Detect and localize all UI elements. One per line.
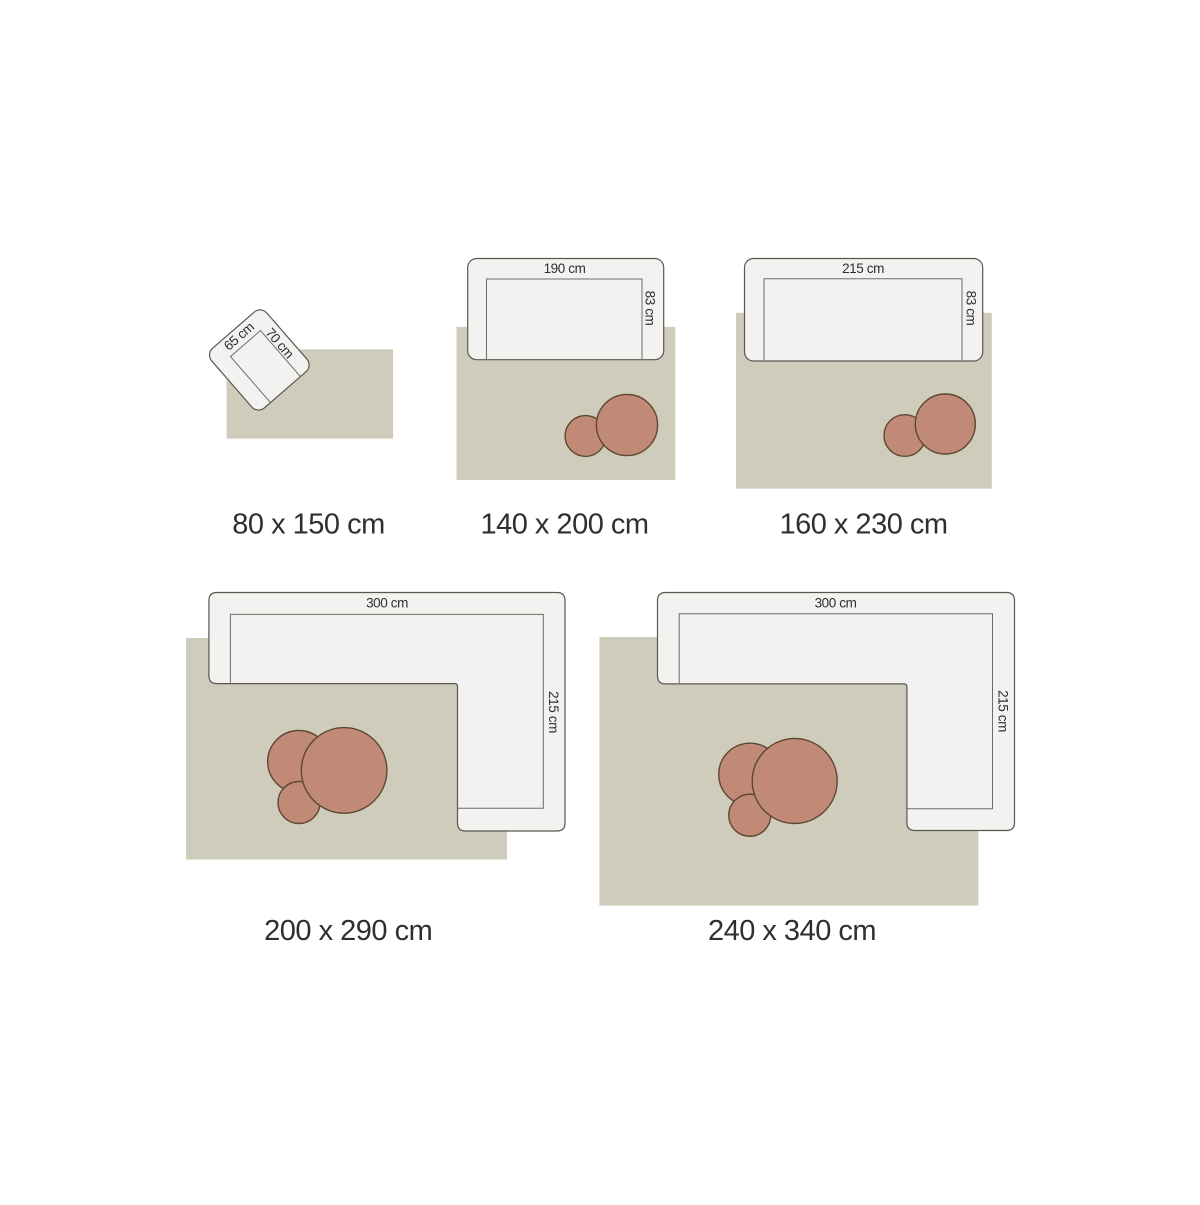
svg-text:215 cm: 215 cm xyxy=(842,261,884,276)
svg-text:160 x 230 cm: 160 x 230 cm xyxy=(779,509,947,541)
svg-text:200 x 290 cm: 200 x 290 cm xyxy=(264,915,432,947)
svg-text:190 cm: 190 cm xyxy=(544,261,586,276)
svg-text:83 cm: 83 cm xyxy=(643,291,658,326)
svg-text:80 x 150 cm: 80 x 150 cm xyxy=(232,509,384,541)
svg-text:300 cm: 300 cm xyxy=(366,596,408,611)
svg-text:215 cm: 215 cm xyxy=(546,691,561,733)
svg-text:240 x 340 cm: 240 x 340 cm xyxy=(708,915,876,947)
svg-text:83 cm: 83 cm xyxy=(964,291,979,326)
svg-text:215 cm: 215 cm xyxy=(996,690,1011,732)
svg-text:140 x 200 cm: 140 x 200 cm xyxy=(480,509,648,541)
svg-text:300 cm: 300 cm xyxy=(815,596,857,611)
